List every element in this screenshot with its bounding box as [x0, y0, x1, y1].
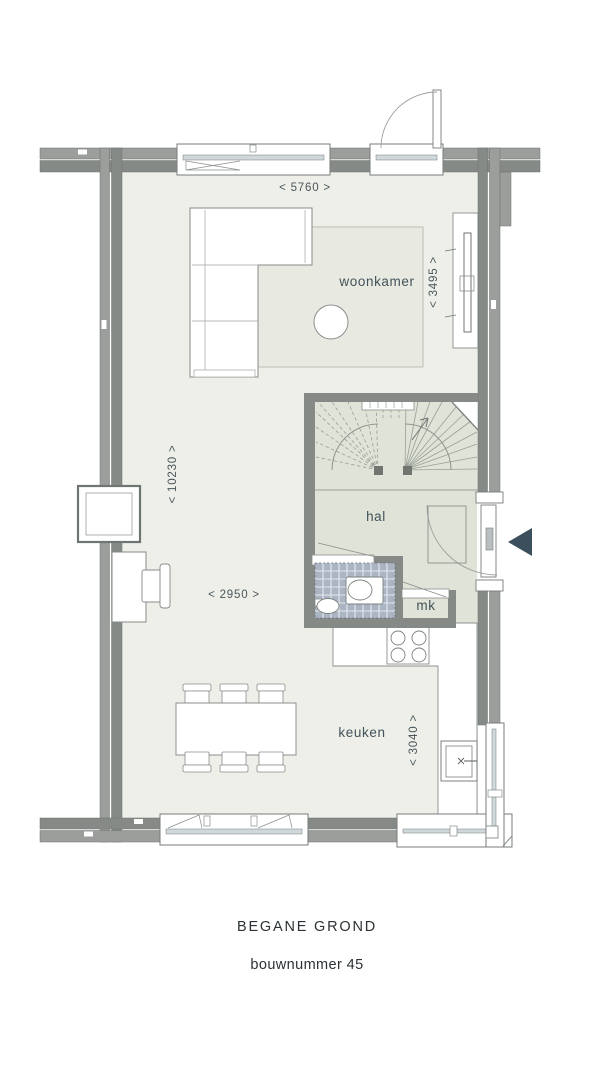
- wall-niche: [78, 486, 140, 542]
- toilet-room: [315, 563, 395, 618]
- living-room-window: [177, 144, 330, 175]
- build-number: bouwnummer 45: [0, 957, 614, 973]
- dim-living-depth: < 3495 >: [428, 256, 440, 308]
- coffee-table: [314, 305, 348, 339]
- dining-window: [160, 814, 308, 845]
- garden-door: [370, 90, 443, 175]
- toilet: [346, 577, 383, 604]
- dining-table: [176, 703, 296, 755]
- hob: [387, 627, 429, 664]
- dining-set: [176, 684, 296, 772]
- kitchen-sink: [441, 741, 477, 781]
- floor-title: BEGANE GROND: [0, 919, 614, 935]
- room-label-hall: hal: [366, 509, 386, 524]
- room-label-living: woonkamer: [338, 274, 414, 289]
- floor-plan-page: woonkamer hal keuken mk < 5760 > < 3495 …: [0, 0, 614, 1092]
- dim-kitchen-depth: < 3040 >: [408, 714, 420, 766]
- dim-dining-width: < 2950 >: [208, 589, 260, 601]
- room-label-kitchen: keuken: [338, 725, 385, 740]
- room-label-meter-cupboard: mk: [416, 598, 435, 613]
- dim-living-width: < 5760 >: [279, 182, 331, 194]
- entrance-arrow-icon: [508, 528, 532, 556]
- dim-house-depth: < 10230 >: [167, 444, 179, 503]
